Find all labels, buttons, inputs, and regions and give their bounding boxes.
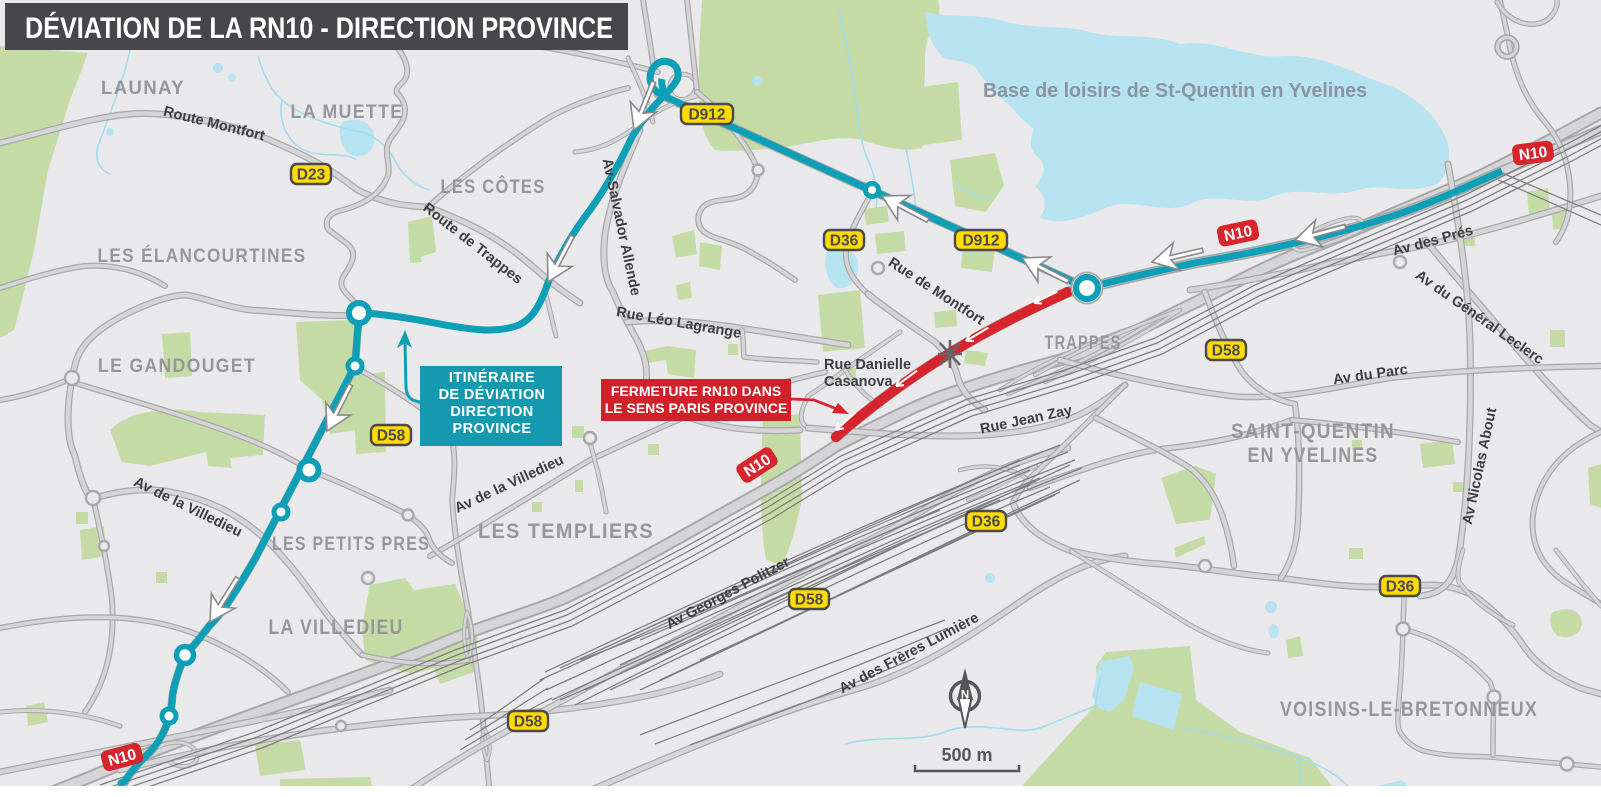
svg-text:Rue Danielle: Rue Danielle	[824, 357, 911, 373]
svg-text:DÉVIATION DE LA RN10 - DIRECTI: DÉVIATION DE LA RN10 - DIRECTION PROVINC…	[25, 11, 613, 45]
svg-text:DIRECTION: DIRECTION	[450, 404, 533, 420]
svg-text:500 m: 500 m	[941, 745, 992, 765]
svg-text:D36: D36	[972, 514, 1001, 531]
svg-text:LA VILLEDIEU: LA VILLEDIEU	[269, 616, 404, 639]
svg-text:D36: D36	[830, 233, 859, 250]
svg-text:VOISINS-LE-BRETONNEUX: VOISINS-LE-BRETONNEUX	[1280, 698, 1538, 721]
svg-text:LES PETITS PRES: LES PETITS PRES	[272, 534, 430, 555]
svg-text:D23: D23	[297, 167, 326, 184]
svg-text:LES TEMPLIERS: LES TEMPLIERS	[478, 520, 654, 543]
svg-text:D58: D58	[514, 714, 543, 731]
svg-text:D912: D912	[688, 107, 725, 124]
svg-text:LE GANDOUGET: LE GANDOUGET	[98, 356, 256, 377]
svg-text:D912: D912	[962, 233, 999, 250]
svg-text:LES CÔTES: LES CÔTES	[441, 176, 546, 198]
svg-text:D36: D36	[1386, 579, 1415, 596]
svg-text:Base de loisirs de St-Quentin: Base de loisirs de St-Quentin en Yveline…	[983, 80, 1367, 102]
svg-text:Casanova: Casanova	[824, 374, 893, 390]
svg-text:N10: N10	[1518, 144, 1548, 164]
svg-text:FERMETURE RN10 DANS: FERMETURE RN10 DANS	[611, 383, 781, 399]
svg-text:TRAPPES: TRAPPES	[1045, 333, 1122, 354]
svg-text:EN YVELINES: EN YVELINES	[1248, 444, 1379, 467]
svg-text:D58: D58	[795, 592, 824, 609]
svg-text:D58: D58	[377, 428, 406, 445]
svg-text:PROVINCE: PROVINCE	[453, 421, 532, 437]
svg-text:N: N	[961, 690, 969, 702]
svg-text:LA MUETTE: LA MUETTE	[291, 102, 404, 123]
svg-text:D58: D58	[1212, 343, 1241, 360]
svg-text:LES ÉLANCOURTINES: LES ÉLANCOURTINES	[98, 245, 307, 267]
svg-text:SAINT-QUENTIN: SAINT-QUENTIN	[1231, 420, 1395, 443]
svg-text:LAUNAY: LAUNAY	[101, 78, 185, 99]
svg-text:LE SENS PARIS PROVINCE: LE SENS PARIS PROVINCE	[605, 400, 788, 416]
svg-text:ITINÉRAIRE: ITINÉRAIRE	[449, 369, 535, 386]
svg-text:DE DÉVIATION: DE DÉVIATION	[439, 386, 546, 403]
